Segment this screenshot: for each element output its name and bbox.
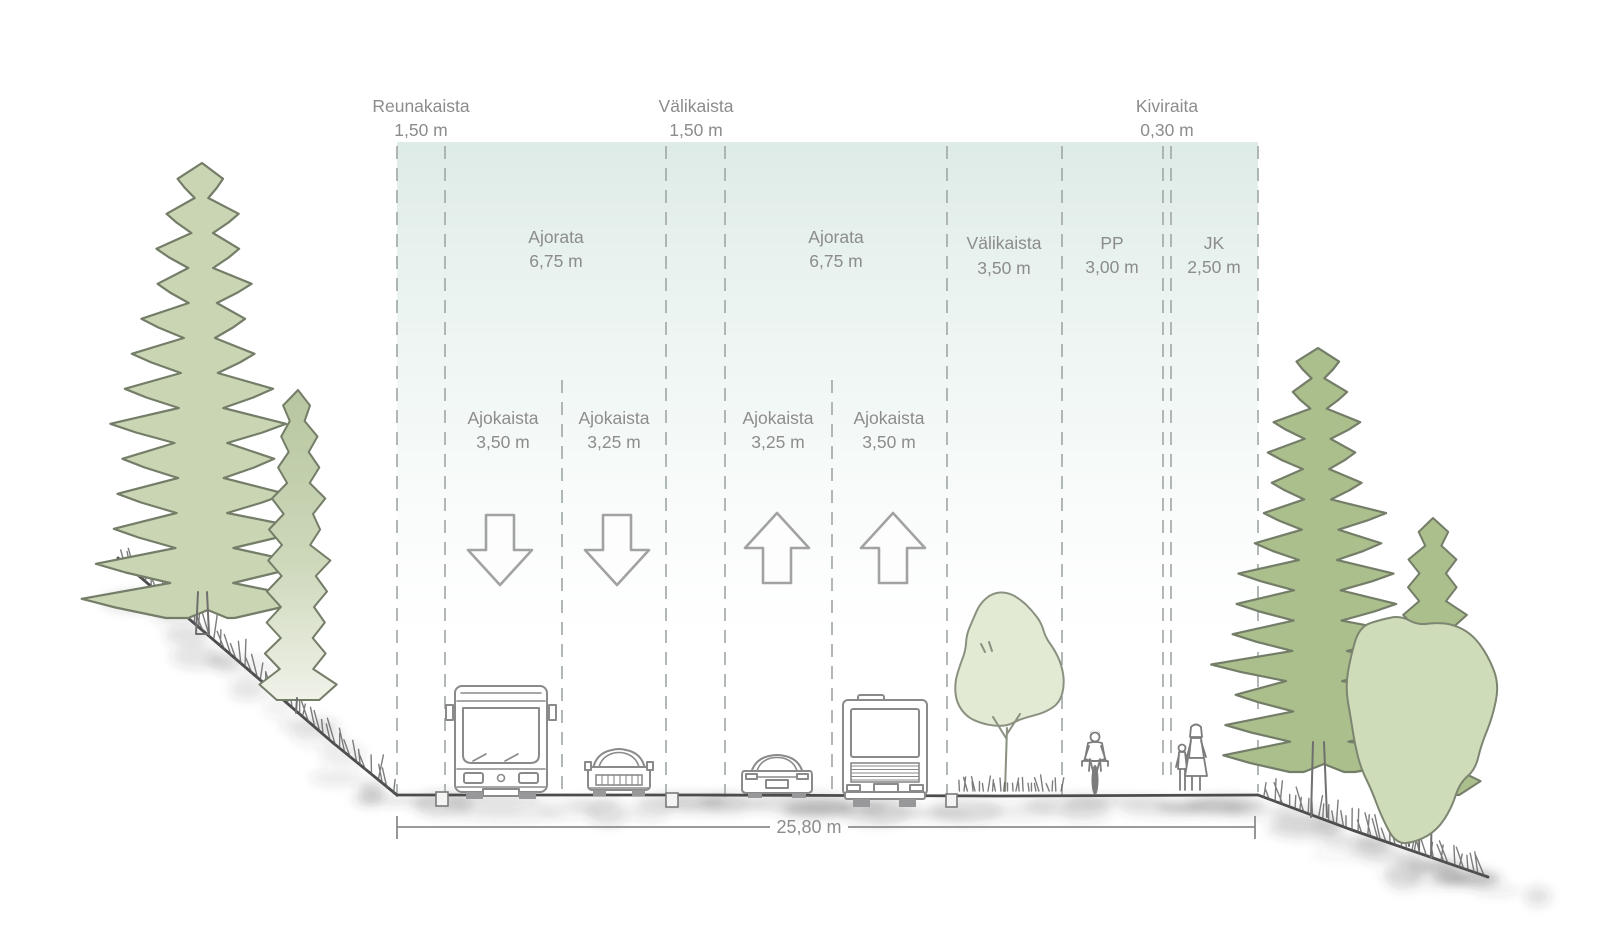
pedestrian-adult [1185, 725, 1207, 791]
ground-smudge [1434, 869, 1500, 887]
ground-smudge [1356, 837, 1388, 849]
label-kiviraita: Kiviraita [1136, 96, 1199, 116]
label-lane-4-width: 3,50 m [862, 432, 916, 452]
label-lane-4: Ajokaista [853, 408, 924, 428]
left-cypress-tree [259, 390, 336, 700]
bus-front [446, 686, 556, 799]
label-valikaista-zone-width: 3,50 m [977, 258, 1031, 278]
ground-smudge [1524, 886, 1551, 906]
label-ajorata-left: Ajorata [528, 227, 584, 247]
label-ajorata-left-width: 6,75 m [529, 251, 583, 271]
total-width-label: 25,80 m [776, 817, 841, 837]
label-ajorata-right-width: 6,75 m [809, 251, 863, 271]
left-spruce-tree [82, 163, 311, 618]
label-jk: JK [1204, 233, 1225, 253]
label-valikaista-top: Välikaista [659, 96, 734, 116]
label-lane-2-width: 3,25 m [587, 432, 641, 452]
car-front [585, 749, 653, 796]
label-lane-3: Ajokaista [742, 408, 813, 428]
label-kiviraita-width: 0,30 m [1140, 120, 1194, 140]
ground-smudge [310, 770, 364, 785]
right-deciduous-tree [1347, 617, 1497, 843]
car-rear [742, 755, 812, 798]
cyclist [1082, 730, 1108, 795]
label-reunakaista: Reunakaista [372, 96, 470, 116]
ground-smudge [1474, 885, 1520, 896]
ground-smudge [587, 800, 628, 827]
vehicles [446, 686, 927, 807]
label-lane-2: Ajokaista [578, 408, 649, 428]
road-cross-section-diagram: Reunakaista 1,50 m Välikaista 1,50 m Kiv… [0, 0, 1600, 952]
curb-stone [666, 793, 678, 807]
ground-smudge [229, 679, 266, 700]
label-pp-width: 3,00 m [1085, 257, 1139, 277]
label-valikaista-top-width: 1,50 m [669, 120, 723, 140]
people [1082, 725, 1207, 796]
label-valikaista-zone: Välikaista [967, 233, 1042, 253]
label-lane-3-width: 3,25 m [751, 432, 805, 452]
ground-smudge [1311, 850, 1374, 859]
median-grass [959, 775, 1064, 791]
bus-rear [843, 695, 927, 807]
curb-stone [436, 792, 448, 806]
sky-wash [397, 142, 1258, 642]
label-lane-1: Ajokaista [467, 408, 538, 428]
label-ajorata-right: Ajorata [808, 227, 864, 247]
label-pp: PP [1100, 233, 1123, 253]
label-lane-1-width: 3,50 m [476, 432, 530, 452]
left-cypress-trunk [296, 698, 297, 713]
curb-stone [946, 794, 957, 807]
label-jk-width: 2,50 m [1187, 257, 1241, 277]
label-reunakaista-width: 1,50 m [394, 120, 448, 140]
diagram-canvas: Reunakaista 1,50 m Välikaista 1,50 m Kiv… [0, 0, 1600, 952]
